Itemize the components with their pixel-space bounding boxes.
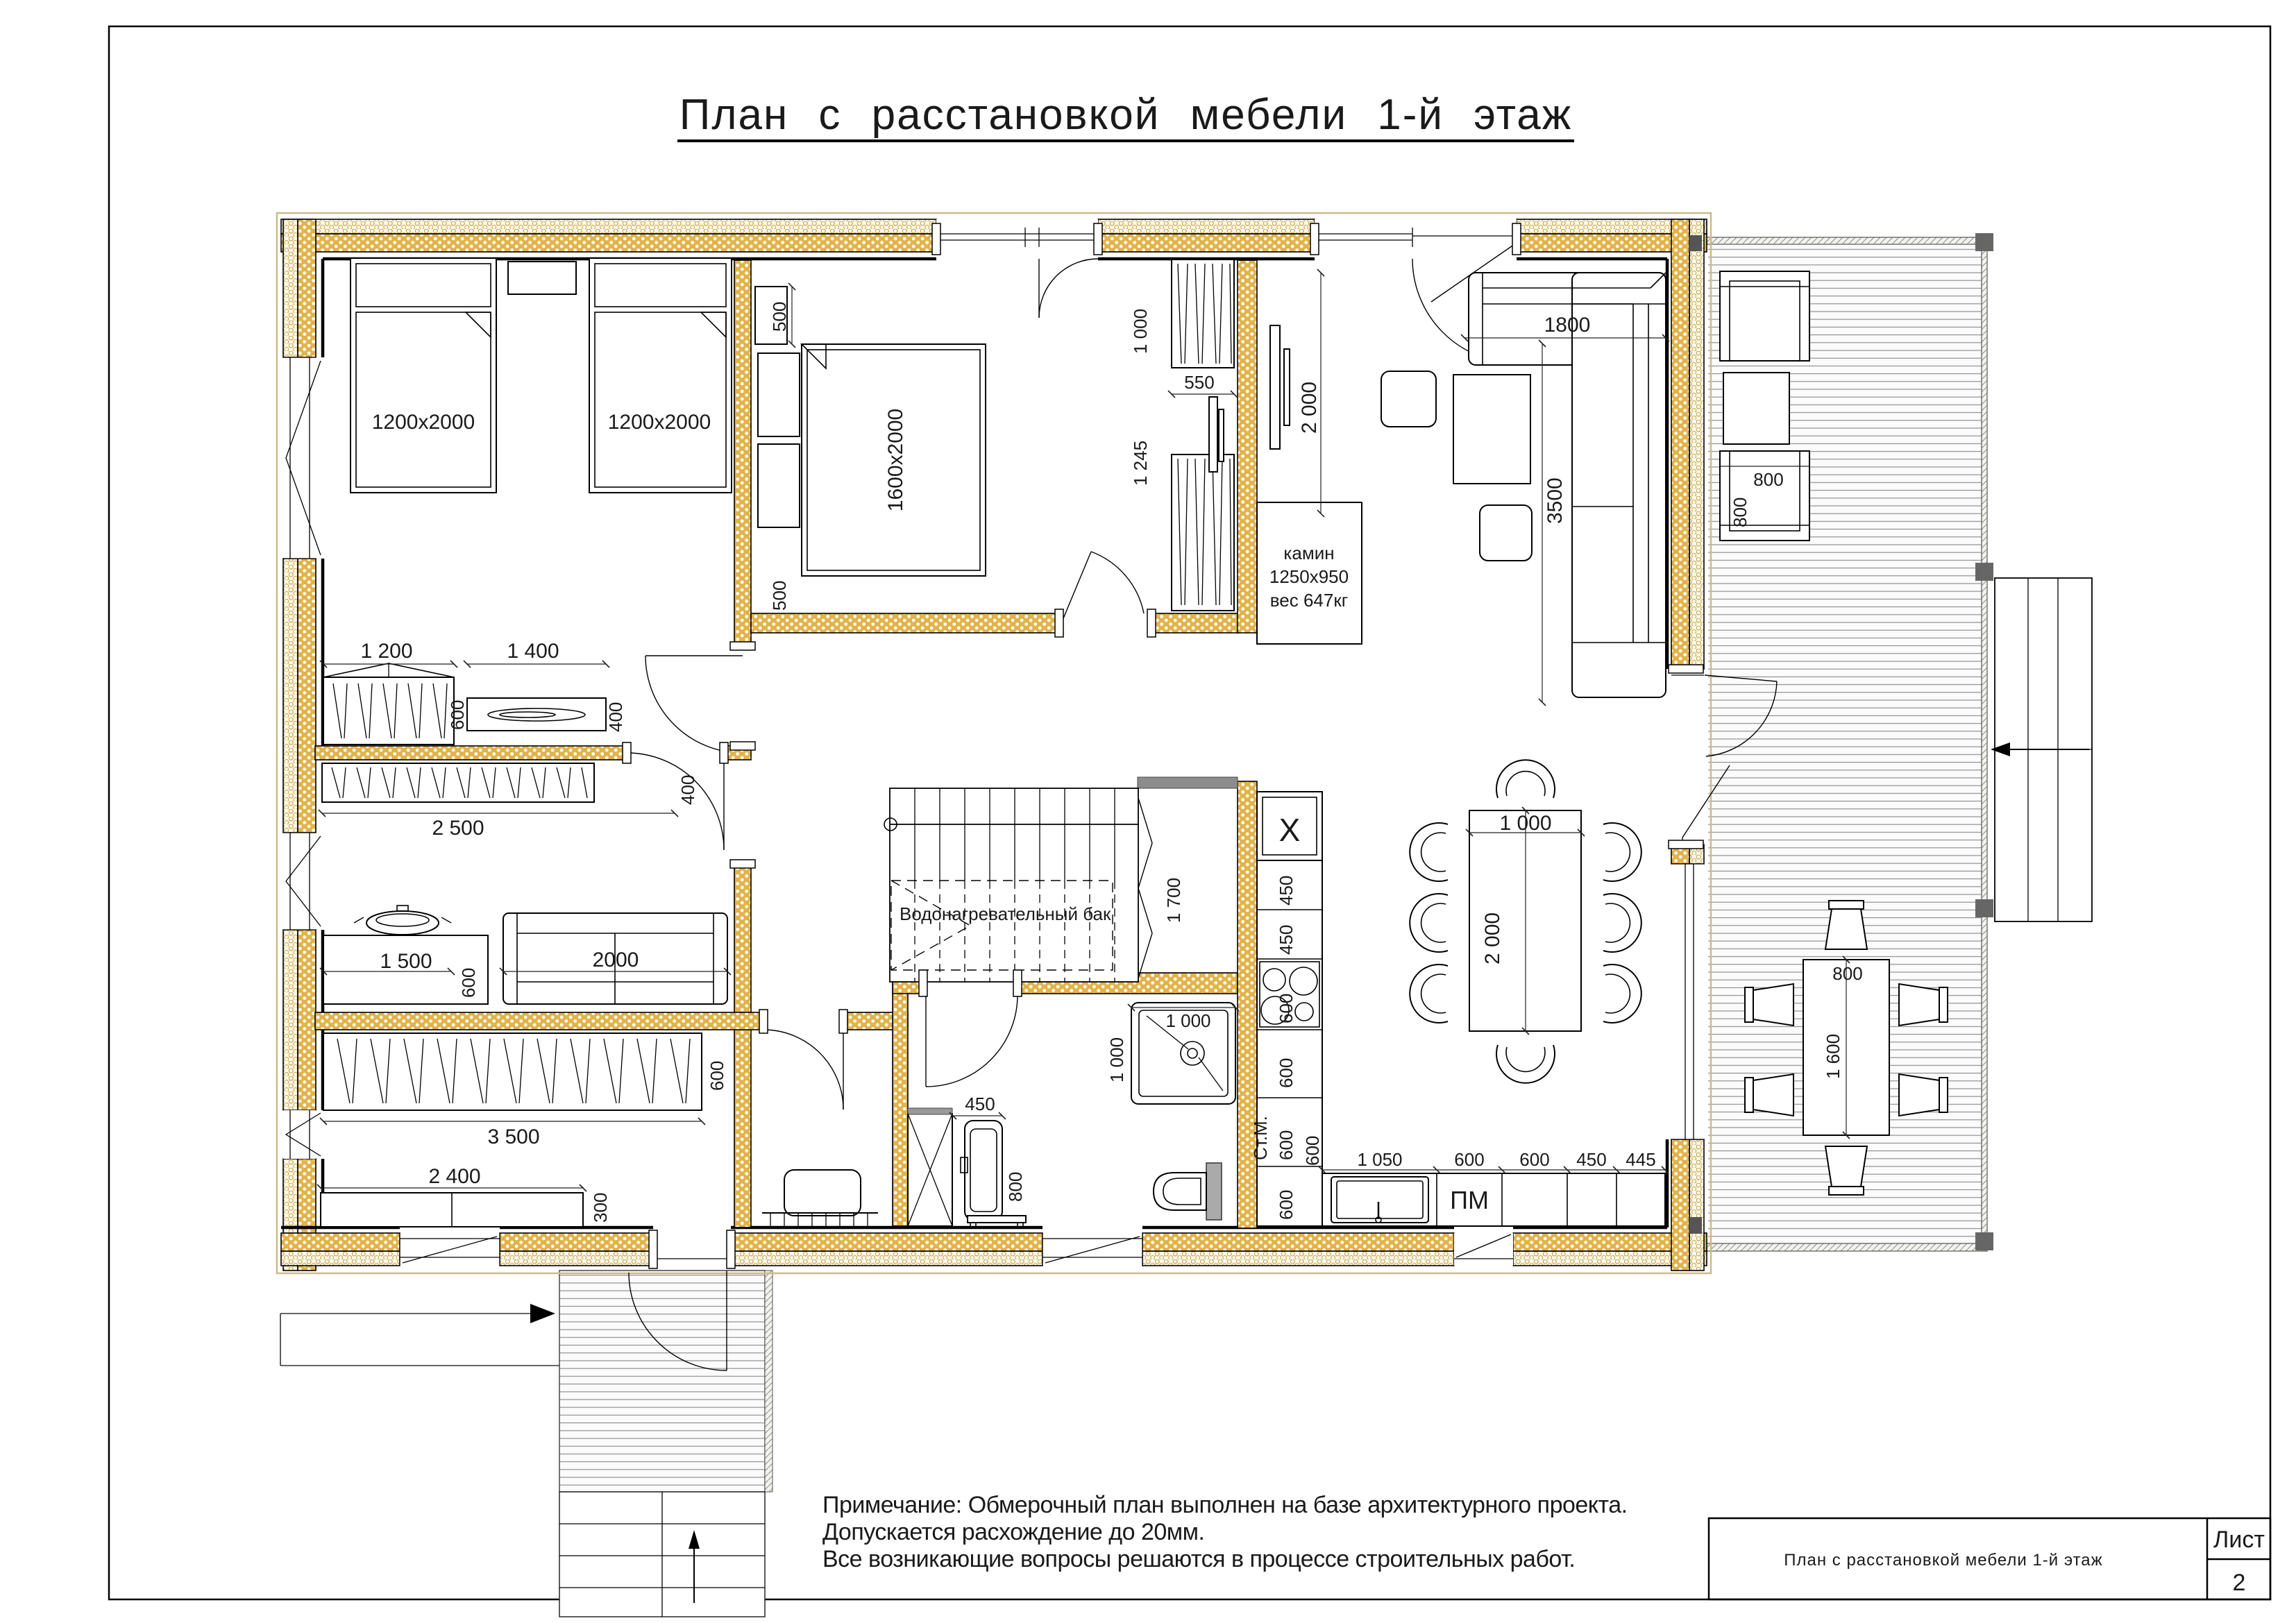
svg-text:вес 647кг: вес 647кг [1270,590,1348,611]
svg-text:1 700: 1 700 [1163,878,1184,923]
svg-text:400: 400 [605,702,626,732]
svg-text:800: 800 [1832,963,1862,984]
svg-text:550: 550 [1184,372,1214,393]
svg-text:2000: 2000 [593,949,639,971]
svg-text:2 400: 2 400 [428,1165,480,1188]
svg-text:400: 400 [677,775,698,805]
svg-text:Все возникающие вопросы решают: Все возникающие вопросы решаются в проце… [822,1546,1575,1572]
svg-text:600: 600 [1276,1130,1297,1160]
svg-text:600: 600 [1302,1136,1323,1166]
svg-text:300: 300 [590,1193,611,1223]
svg-text:1 000: 1 000 [1499,812,1551,835]
svg-text:Лист: Лист [2213,1527,2265,1553]
svg-text:План с расстановкой мебели 1-й: План с расстановкой мебели 1-й этаж [679,91,1572,139]
svg-text:600: 600 [447,700,468,730]
svg-text:1 050: 1 050 [1357,1149,1402,1170]
svg-text:800: 800 [1730,498,1750,527]
svg-text:X: X [1279,812,1301,848]
svg-text:800: 800 [1753,469,1783,490]
svg-text:500: 500 [769,302,790,332]
svg-text:600: 600 [1454,1149,1484,1170]
svg-text:600: 600 [1276,994,1297,1023]
svg-text:2 000: 2 000 [1481,912,1504,965]
svg-text:Ст.М.: Ст.М. [1250,1116,1271,1160]
svg-text:2 000: 2 000 [1298,382,1321,434]
svg-text:1 200: 1 200 [360,640,412,663]
svg-text:1800: 1800 [1544,314,1591,337]
svg-text:1 245: 1 245 [1130,441,1151,486]
svg-text:1 000: 1 000 [1165,1010,1210,1031]
svg-text:500: 500 [769,581,790,611]
svg-text:Водонагревательный бак: Водонагревательный бак [900,903,1111,924]
svg-text:1250х950: 1250х950 [1269,566,1349,587]
svg-text:450: 450 [1276,925,1297,955]
svg-text:1200x2000: 1200x2000 [608,411,711,434]
svg-text:камин: камин [1283,543,1334,563]
svg-text:Примечание: Обмерочный план вы: Примечание: Обмерочный план выполнен на … [822,1492,1628,1518]
svg-text:1 400: 1 400 [507,640,559,663]
svg-text:ПМ: ПМ [1450,1186,1489,1214]
svg-text:1200x2000: 1200x2000 [372,411,475,434]
svg-text:2: 2 [2233,1570,2246,1596]
svg-text:800: 800 [1005,1172,1026,1202]
svg-text:600: 600 [707,1061,727,1091]
svg-text:План с расстановкой мебели 1-й: План с расстановкой мебели 1-й этаж [1784,1551,2102,1570]
svg-text:2 500: 2 500 [432,817,484,840]
svg-text:1600x2000: 1600x2000 [884,409,907,511]
svg-text:600: 600 [458,968,479,998]
svg-text:450: 450 [1576,1149,1606,1170]
svg-text:600: 600 [1276,1058,1297,1088]
svg-text:3 500: 3 500 [487,1125,539,1148]
svg-text:600: 600 [1276,1190,1297,1220]
svg-text:3500: 3500 [1544,477,1567,524]
svg-text:1 600: 1 600 [1823,1034,1843,1079]
svg-text:445: 445 [1626,1149,1655,1170]
svg-text:1 000: 1 000 [1106,1037,1127,1082]
svg-text:600: 600 [1519,1149,1549,1170]
svg-text:450: 450 [965,1094,995,1114]
svg-text:Допускается расхождение до 20м: Допускается расхождение до 20мм. [822,1519,1205,1545]
svg-text:1 000: 1 000 [1130,309,1151,354]
svg-text:1 500: 1 500 [380,950,432,973]
svg-text:450: 450 [1276,876,1297,906]
